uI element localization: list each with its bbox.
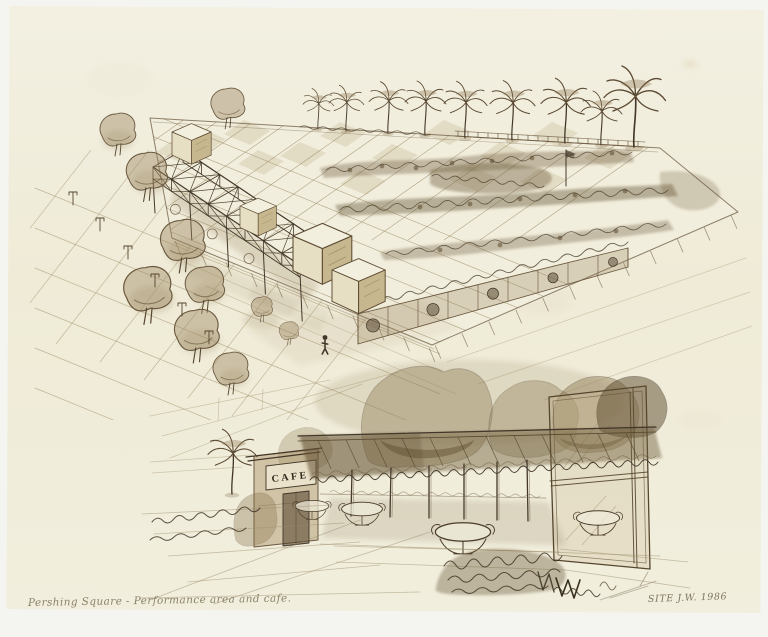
cube-block bbox=[172, 124, 211, 165]
scan-background: CAFE bbox=[0, 0, 768, 637]
pershing-square-drawing: CAFE bbox=[0, 0, 768, 637]
cube-block bbox=[332, 259, 385, 314]
cube-block bbox=[240, 198, 276, 236]
